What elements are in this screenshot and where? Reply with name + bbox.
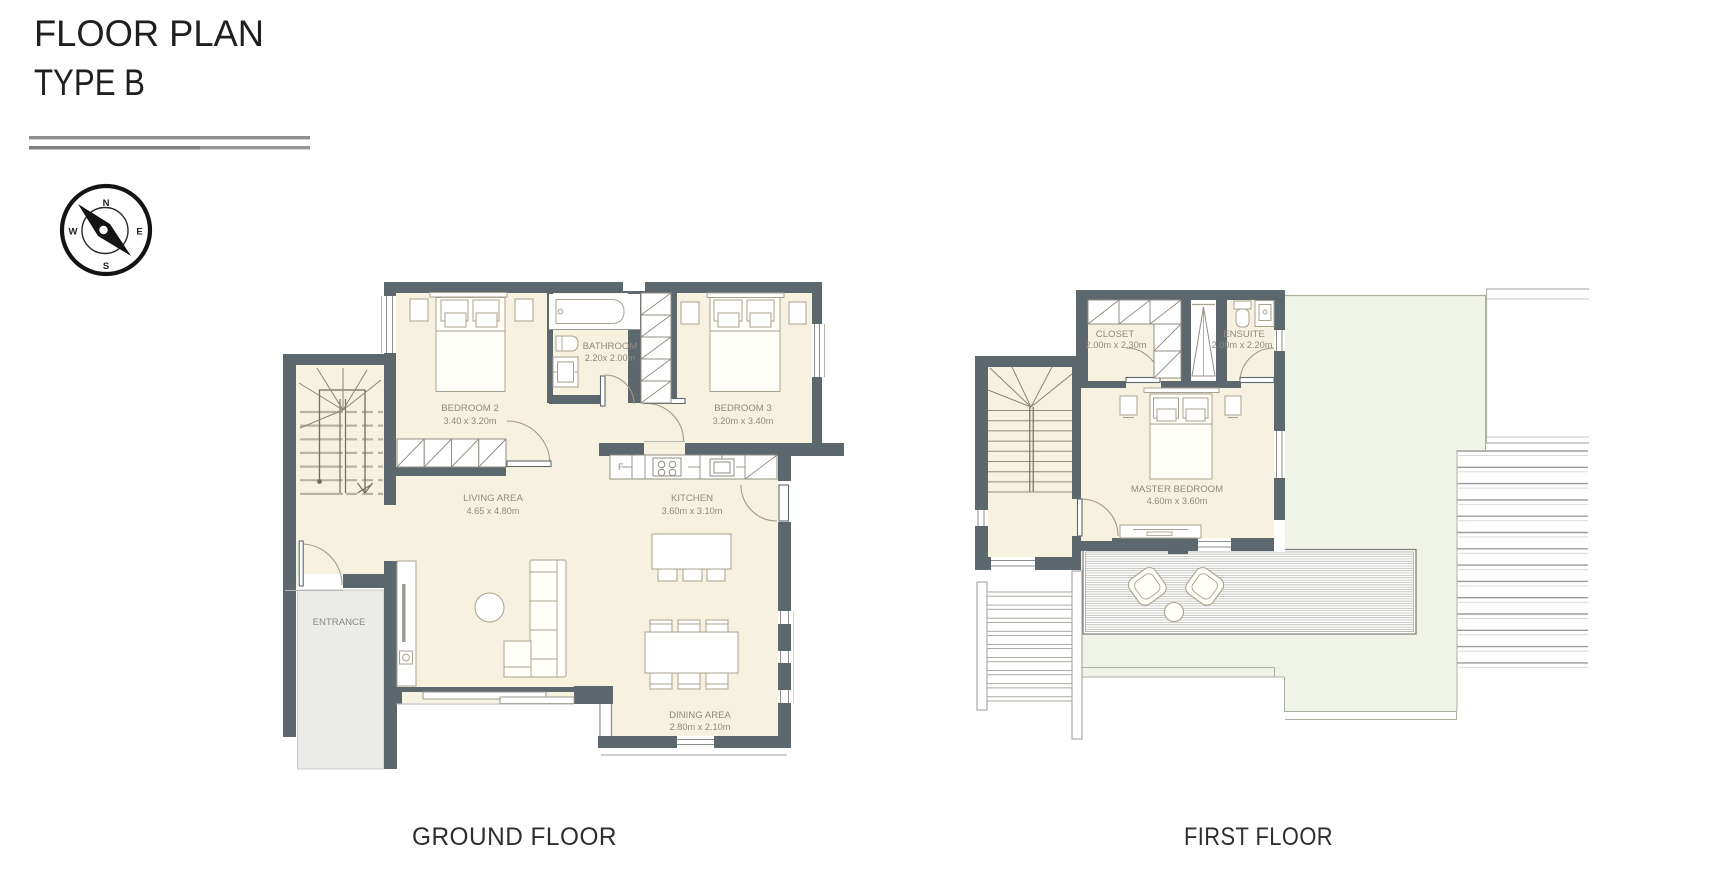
svg-text:E: E [136,227,142,238]
svg-text:S: S [103,261,109,272]
svg-text:BATHROOM: BATHROOM [583,341,638,352]
svg-text:4.60m x 3.60m: 4.60m x 3.60m [1147,496,1208,506]
svg-text:F: F [618,462,624,472]
svg-text:BEDROOM 2: BEDROOM 2 [441,403,499,414]
svg-text:CLOSET: CLOSET [1096,329,1135,340]
svg-text:ENTRANCE: ENTRANCE [313,617,366,628]
svg-text:LIVING AREA: LIVING AREA [463,493,523,504]
svg-text:DINING AREA: DINING AREA [669,710,731,721]
svg-text:4.65 x 4.80m: 4.65 x 4.80m [466,506,519,516]
svg-text:3.60m x 3.10m: 3.60m x 3.10m [662,506,723,516]
svg-text:FIRST FLOOR: FIRST FLOOR [1184,823,1333,851]
svg-text:FLOOR PLAN: FLOOR PLAN [34,13,264,54]
svg-text:BEDROOM 3: BEDROOM 3 [714,403,772,414]
svg-text:N: N [103,198,110,209]
svg-text:2.00m x 2.20m: 2.00m x 2.20m [1212,340,1273,350]
svg-text:GROUND FLOOR: GROUND FLOOR [412,823,617,851]
svg-text:W: W [69,227,78,238]
svg-text:2.80m x 2.10m: 2.80m x 2.10m [670,722,731,732]
svg-text:KITCHEN: KITCHEN [671,493,713,504]
svg-text:2.20x 2.00m: 2.20x 2.00m [585,353,636,363]
svg-text:ENSUITE: ENSUITE [1223,329,1265,340]
svg-text:3.40 x 3.20m: 3.40 x 3.20m [443,416,496,426]
svg-text:TYPE B: TYPE B [34,62,145,103]
svg-text:MASTER BEDROOM: MASTER BEDROOM [1131,484,1223,495]
svg-text:3.20m x 3.40m: 3.20m x 3.40m [713,416,774,426]
svg-text:2.00m x 2.30m: 2.00m x 2.30m [1086,340,1147,350]
